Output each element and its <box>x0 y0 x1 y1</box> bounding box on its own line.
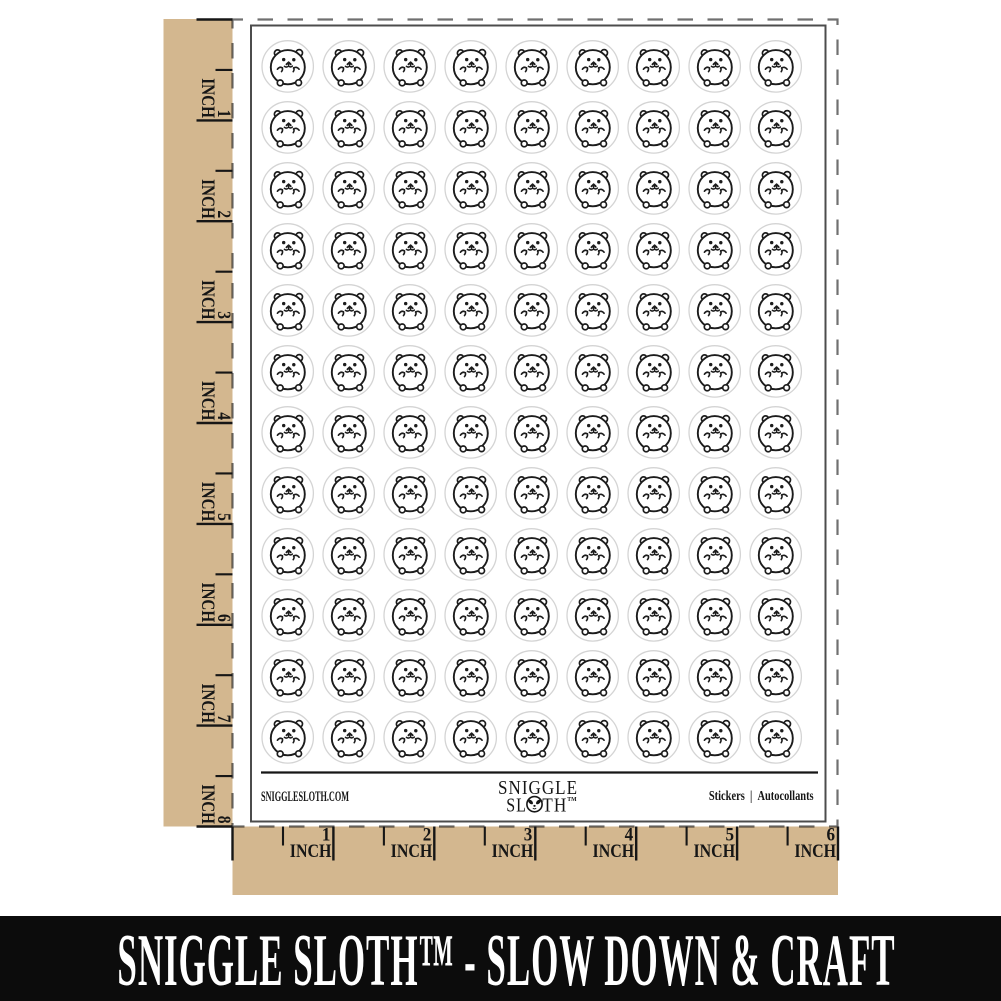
svg-text:INCH: INCH <box>197 784 218 824</box>
svg-text:Stickers | Autocollants: Stickers | Autocollants <box>709 787 814 803</box>
svg-text:INCH: INCH <box>197 482 218 522</box>
svg-text:TM: TM <box>567 797 577 803</box>
svg-text:INCH: INCH <box>693 840 735 862</box>
svg-text:INCH: INCH <box>197 280 218 320</box>
svg-text:INCH: INCH <box>197 381 218 421</box>
svg-text:INCH: INCH <box>492 840 534 862</box>
svg-text:INCH: INCH <box>197 583 218 623</box>
svg-text:INCH: INCH <box>794 840 836 862</box>
svg-text:INCH: INCH <box>197 179 218 219</box>
svg-text:SL: SL <box>506 794 527 816</box>
svg-text:INCH: INCH <box>290 840 332 862</box>
svg-text:SNIGGLESLOTH.COM: SNIGGLESLOTH.COM <box>261 788 349 805</box>
svg-text:INCH: INCH <box>197 78 218 118</box>
svg-text:INCH: INCH <box>391 840 433 862</box>
svg-text:SNIGGLE SLOTH™ - SLOW DOWN & C: SNIGGLE SLOTH™ - SLOW DOWN & CRAFT <box>117 918 895 1001</box>
svg-text:TH: TH <box>542 794 567 817</box>
svg-text:INCH: INCH <box>197 683 218 723</box>
svg-text:INCH: INCH <box>593 840 635 862</box>
